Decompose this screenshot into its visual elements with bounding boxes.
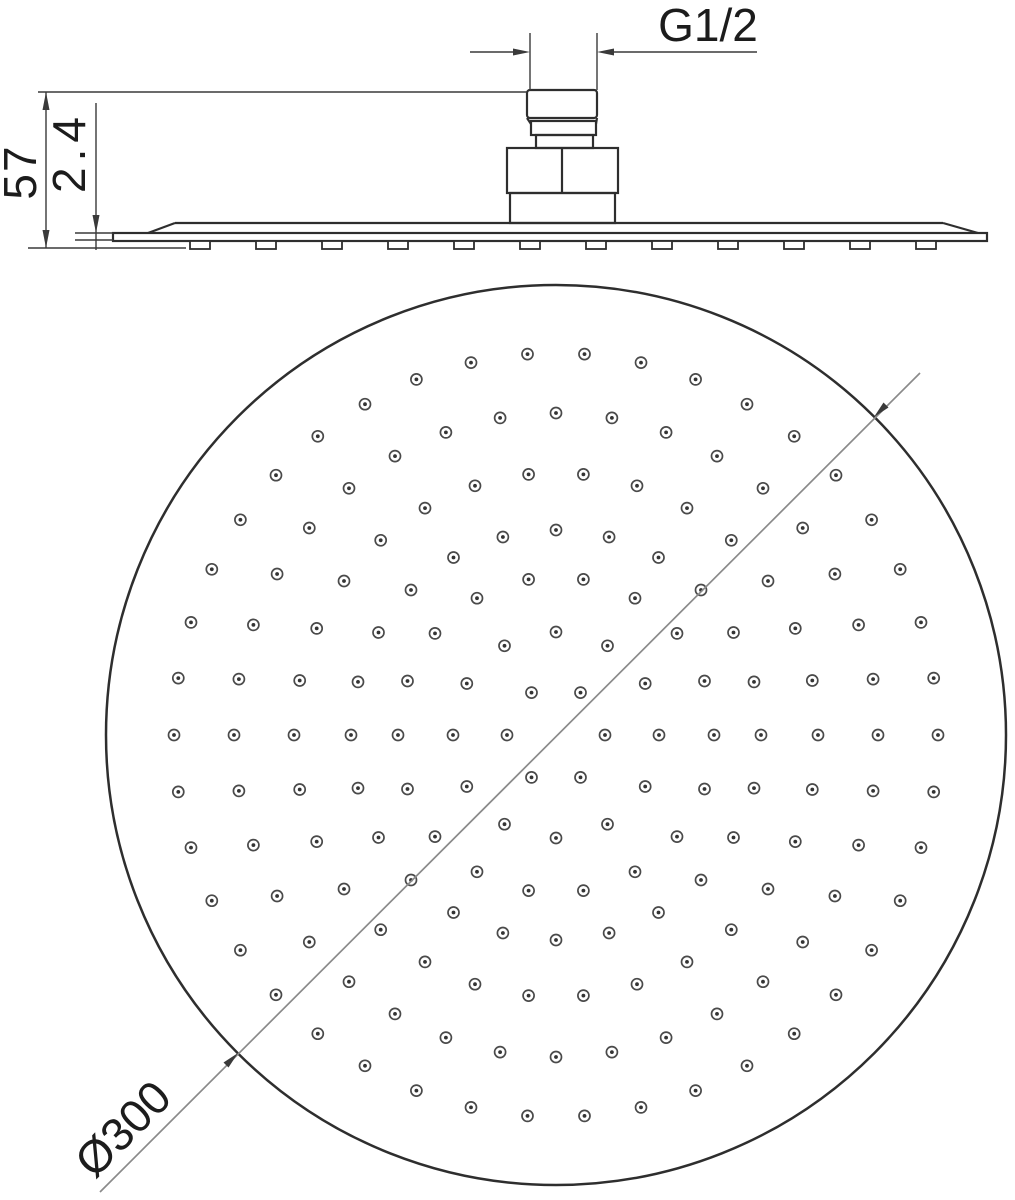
- nozzle-dot: [919, 846, 923, 850]
- nozzle-dot: [307, 940, 311, 944]
- nozzle-dot: [275, 572, 279, 576]
- nozzle-dot: [475, 596, 479, 600]
- nozzle-dot: [579, 691, 583, 695]
- nozzle-dot: [307, 526, 311, 530]
- nozzle-dot: [898, 567, 902, 571]
- nozzle-dot: [189, 621, 193, 625]
- nozzle-dot: [871, 789, 875, 793]
- nozzle-dot: [451, 733, 455, 737]
- nozzle-dot: [582, 578, 586, 582]
- nozzle-dot: [465, 682, 469, 686]
- nozzle-dot: [316, 1032, 320, 1036]
- dim-g12-arrow-right: [513, 49, 530, 56]
- nozzle-bump: [784, 241, 804, 249]
- nozzle-dot: [237, 677, 241, 681]
- nozzle-dot: [298, 679, 302, 683]
- nozzle-bump: [520, 241, 540, 249]
- nozzle-dot: [761, 486, 765, 490]
- nozzle-dot: [433, 632, 437, 636]
- nozzle-dot: [363, 1064, 367, 1068]
- nozzle-dot: [237, 789, 241, 793]
- nozzle-dot: [583, 1114, 587, 1118]
- nozzle-bumps: [190, 241, 936, 249]
- nozzle-dot: [732, 836, 736, 840]
- nozzle-dot: [406, 787, 410, 791]
- nozzle-dot: [703, 679, 707, 683]
- nozzle-dot: [415, 1089, 419, 1093]
- nozzle-dot: [610, 416, 614, 420]
- nozzle-dot: [919, 621, 923, 625]
- nozzle-dot: [379, 538, 383, 542]
- nozzle-dot: [664, 1036, 668, 1040]
- nozzle-dot: [643, 785, 647, 789]
- nozzle-dot: [316, 434, 320, 438]
- nozzle-dot: [501, 931, 505, 935]
- nozzle-dot: [675, 632, 679, 636]
- faceplate-outline: [113, 233, 987, 241]
- nozzle-dot: [607, 535, 611, 539]
- nozzle-dot: [834, 473, 838, 477]
- nozzle-dot: [745, 1064, 749, 1068]
- nozzle-dot: [699, 878, 703, 882]
- nozzle-bump: [388, 241, 408, 249]
- nozzle-dot: [444, 1036, 448, 1040]
- nozzle-dot: [936, 733, 940, 737]
- nozzle-dot: [876, 733, 880, 737]
- nozzle-dot: [857, 843, 861, 847]
- dim-g12-label: G1/2: [658, 0, 758, 51]
- nozzle-dot: [657, 911, 661, 915]
- nozzle-dot: [356, 680, 360, 684]
- nozzle-dot: [633, 596, 637, 600]
- nozzle-dot: [675, 835, 679, 839]
- nozzle-dot: [189, 846, 193, 850]
- nozzle-dot: [607, 931, 611, 935]
- nozzle-dot: [685, 960, 689, 964]
- nozzle-dot: [606, 644, 610, 648]
- nozzle-dot: [172, 733, 176, 737]
- nozzle-dot: [176, 676, 180, 680]
- nozzle-dot: [415, 378, 419, 382]
- nozzle-dot: [530, 776, 534, 780]
- face-view: Ø300: [65, 285, 1006, 1192]
- nozzle-dot: [871, 677, 875, 681]
- nozzle-dot: [635, 982, 639, 986]
- nozzle-dot: [633, 870, 637, 874]
- nozzle-dot: [527, 473, 531, 477]
- shower-head-technical-drawing: 57 2.4 G1/2 Ø300: [0, 0, 1015, 1200]
- nozzle-bump: [718, 241, 738, 249]
- nozzle-dot: [554, 836, 558, 840]
- nozzle-dot: [393, 454, 397, 458]
- nozzle-dot: [530, 691, 534, 695]
- nozzle-dot: [342, 579, 346, 583]
- nozzle-dot: [176, 790, 180, 794]
- nozzle-dot: [527, 994, 531, 998]
- nozzle-bump: [916, 241, 936, 249]
- nozzle-dot: [554, 630, 558, 634]
- nozzle-dot: [898, 899, 902, 903]
- thread-neck-upper: [531, 121, 596, 135]
- g12-thread-outline: [527, 90, 597, 118]
- nozzle-dot: [503, 822, 507, 826]
- nozzle-dot: [766, 579, 770, 583]
- nozzle-dot: [664, 431, 668, 435]
- nozzle-dot: [801, 940, 805, 944]
- nozzle-dot: [712, 733, 716, 737]
- nozzle-dot: [694, 378, 698, 382]
- nozzle-dot: [583, 352, 587, 356]
- nozzle-dot: [657, 733, 661, 737]
- nozzle-dot: [232, 733, 236, 737]
- nozzle-dot: [657, 556, 661, 560]
- nozzle-dot: [377, 836, 381, 840]
- nozzle-bump: [256, 241, 276, 249]
- nozzle-dot: [356, 786, 360, 790]
- nozzle-dot: [292, 733, 296, 737]
- nozzle-dot: [792, 1032, 796, 1036]
- nozzle-dot: [801, 526, 805, 530]
- nozzle-bump: [652, 241, 672, 249]
- nozzle-dot: [210, 899, 214, 903]
- side-view: 57 2.4 G1/2: [0, 0, 987, 250]
- cover-bevel-left: [148, 223, 175, 233]
- nozzle-dot: [694, 1089, 698, 1093]
- nozzle-dot: [870, 518, 874, 522]
- nozzle-dot: [793, 840, 797, 844]
- nozzle-dot: [298, 788, 302, 792]
- nozzle-dot: [729, 928, 733, 932]
- nozzle-dot: [503, 644, 507, 648]
- diameter-arrow-upper: [874, 403, 889, 418]
- nozzle-dot: [452, 556, 456, 560]
- dim-57-label: 57: [0, 144, 46, 199]
- nozzle-dot: [554, 1055, 558, 1059]
- dim-24-label: 2.4: [43, 111, 95, 193]
- nozzle-dot: [793, 627, 797, 631]
- nozzle-dot: [729, 538, 733, 542]
- nozzle-dot: [834, 993, 838, 997]
- nozzle-dot: [810, 788, 814, 792]
- nozzle-dot: [554, 938, 558, 942]
- nozzle-dot: [703, 787, 707, 791]
- nozzle-bump: [190, 241, 210, 249]
- nozzle-dot: [349, 733, 353, 737]
- nozzle-dot: [554, 528, 558, 532]
- nozzle-dot: [274, 473, 278, 477]
- dim-57-arrow-up: [43, 92, 50, 110]
- nozzle-dot: [501, 535, 505, 539]
- nozzle-dot: [833, 572, 837, 576]
- nozzle-bump: [322, 241, 342, 249]
- nozzle-dot: [475, 870, 479, 874]
- nozzle-bump: [454, 241, 474, 249]
- nozzle-dot: [816, 733, 820, 737]
- nozzle-dot: [635, 484, 639, 488]
- nozzle-dot: [639, 361, 643, 365]
- nozzle-dot: [610, 1050, 614, 1054]
- nozzle-dot: [452, 911, 456, 915]
- nozzle-dot: [444, 431, 448, 435]
- nozzle-dot: [554, 411, 558, 415]
- nozzle-dot: [433, 835, 437, 839]
- nozzle-dot: [210, 567, 214, 571]
- nozzle-dot: [766, 887, 770, 891]
- nozzle-dot: [396, 733, 400, 737]
- nozzle-dot: [606, 822, 610, 826]
- nozzle-dot: [603, 733, 607, 737]
- nozzle-dot: [527, 889, 531, 893]
- nozzle-dot: [347, 486, 351, 490]
- nozzle-dot: [347, 980, 351, 984]
- drawing-page: 57 2.4 G1/2 Ø300: [0, 0, 1015, 1200]
- nozzle-dot: [745, 402, 749, 406]
- nozzle-dot: [715, 1012, 719, 1016]
- nozzle-dot: [527, 578, 531, 582]
- nozzle-dot: [759, 733, 763, 737]
- nozzle-dot: [582, 473, 586, 477]
- nozzle-dot: [423, 506, 427, 510]
- nozzle-dot: [274, 993, 278, 997]
- nozzle-dot: [870, 948, 874, 952]
- nozzle-dot: [732, 631, 736, 635]
- nozzle-dot: [505, 733, 509, 737]
- nozzle-dot: [579, 776, 583, 780]
- nozzle-dot: [685, 506, 689, 510]
- dim-g12-arrow-left: [597, 49, 614, 56]
- dim-24-arrow-down: [93, 215, 100, 233]
- nozzle-bump: [586, 241, 606, 249]
- dim-57-arrow-down: [43, 230, 50, 248]
- nozzle-dot: [469, 361, 473, 365]
- connector-base-outline: [510, 193, 615, 223]
- nozzle-dot: [423, 960, 427, 964]
- nozzle-dot: [469, 1106, 473, 1110]
- nozzle-dot: [582, 889, 586, 893]
- nozzle-dot: [275, 894, 279, 898]
- nozzle-dot: [752, 786, 756, 790]
- nozzle-dot: [498, 1050, 502, 1054]
- nozzle-dot: [526, 352, 530, 356]
- nozzle-dot: [833, 894, 837, 898]
- nozzle-dot: [932, 676, 936, 680]
- nozzle-dot: [239, 518, 243, 522]
- nozzle-dot: [252, 623, 256, 627]
- nozzle-dot: [239, 948, 243, 952]
- nozzle-dot: [857, 623, 861, 627]
- nozzle-dot: [473, 982, 477, 986]
- nozzle-dot: [639, 1106, 643, 1110]
- nozzle-dot: [377, 631, 381, 635]
- nozzle-dot: [643, 682, 647, 686]
- nozzle-dot: [393, 1012, 397, 1016]
- nozzle-dot: [473, 484, 477, 488]
- nozzle-dot: [315, 627, 319, 631]
- thread-chamfer-right: [596, 118, 597, 124]
- thread-neck-lower: [536, 135, 593, 148]
- nozzle-dot: [752, 680, 756, 684]
- nozzle-dot: [409, 588, 413, 592]
- nozzle-dot: [498, 416, 502, 420]
- cover-bevel-right: [943, 223, 978, 233]
- nozzle-dot: [932, 790, 936, 794]
- diameter-dim-line: [100, 373, 920, 1192]
- nozzle-dot: [715, 454, 719, 458]
- nozzle-dot: [363, 402, 367, 406]
- nozzle-bump: [850, 241, 870, 249]
- nozzle-dot: [315, 840, 319, 844]
- nozzle-dot: [406, 679, 410, 683]
- nozzle-dot: [526, 1114, 530, 1118]
- nozzle-dot: [379, 928, 383, 932]
- nozzle-dot: [252, 843, 256, 847]
- nozzle-dot: [792, 434, 796, 438]
- nozzle-dot: [342, 887, 346, 891]
- nozzle-dot: [465, 785, 469, 789]
- nozzle-dot: [582, 994, 586, 998]
- nozzle-dot: [761, 980, 765, 984]
- nozzle-dot: [810, 679, 814, 683]
